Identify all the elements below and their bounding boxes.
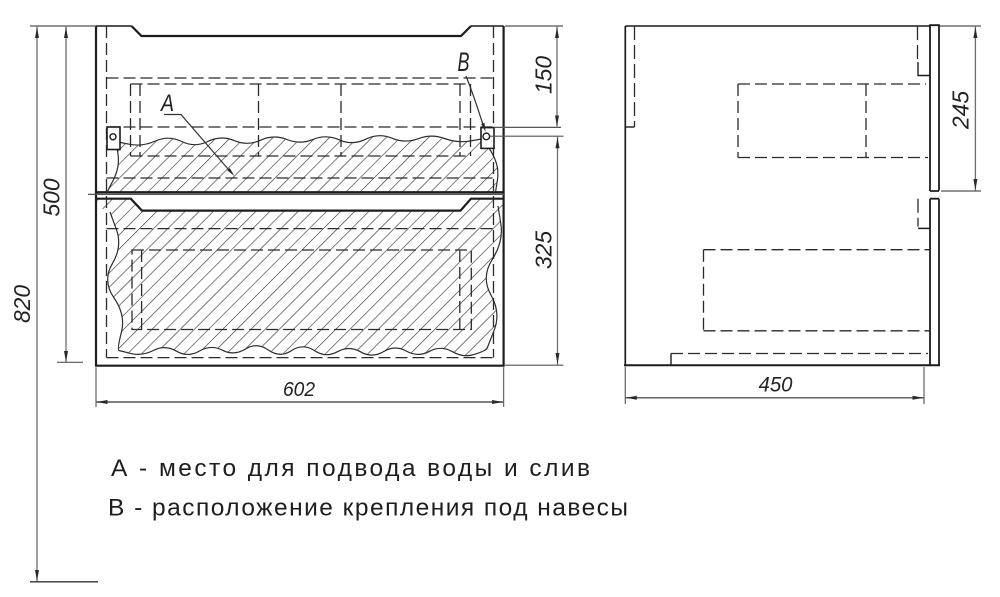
svg-text:450: 450 — [759, 373, 793, 397]
svg-text:A: A — [159, 90, 174, 117]
svg-text:602: 602 — [283, 378, 315, 401]
svg-text:В - расположение крепления под: В - расположение крепления под навесы — [108, 495, 628, 522]
svg-text:500: 500 — [39, 178, 65, 216]
svg-text:B: B — [458, 47, 470, 77]
svg-text:150: 150 — [531, 56, 557, 94]
svg-text:325: 325 — [531, 231, 557, 269]
svg-text:820: 820 — [9, 285, 35, 323]
svg-text:245: 245 — [948, 91, 974, 130]
